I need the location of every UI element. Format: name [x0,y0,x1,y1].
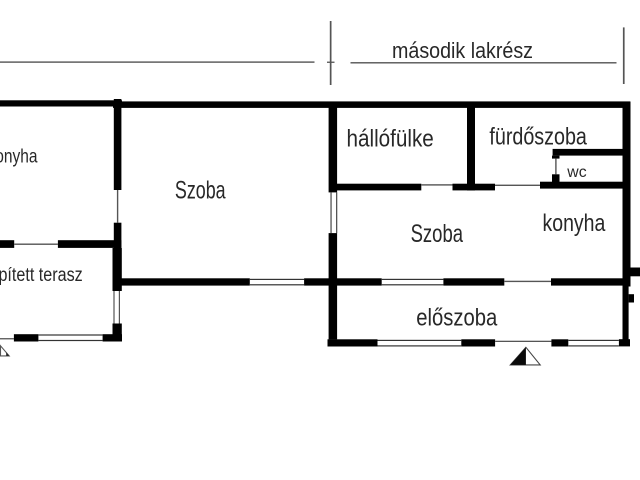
svg-text:előszoba: előszoba [416,305,498,332]
svg-text:második lakrész: második lakrész [392,38,533,63]
svg-text:wc: wc [566,164,586,181]
svg-text:Szoba: Szoba [175,177,226,205]
svg-text:fürdőszoba: fürdőszoba [489,124,587,151]
svg-text:épített terasz: épített terasz [0,265,83,286]
svg-text:konyha: konyha [0,146,38,167]
svg-text:konyha: konyha [543,210,606,237]
svg-text:Szoba: Szoba [411,220,463,248]
svg-text:hállófülke: hállófülke [347,126,434,153]
